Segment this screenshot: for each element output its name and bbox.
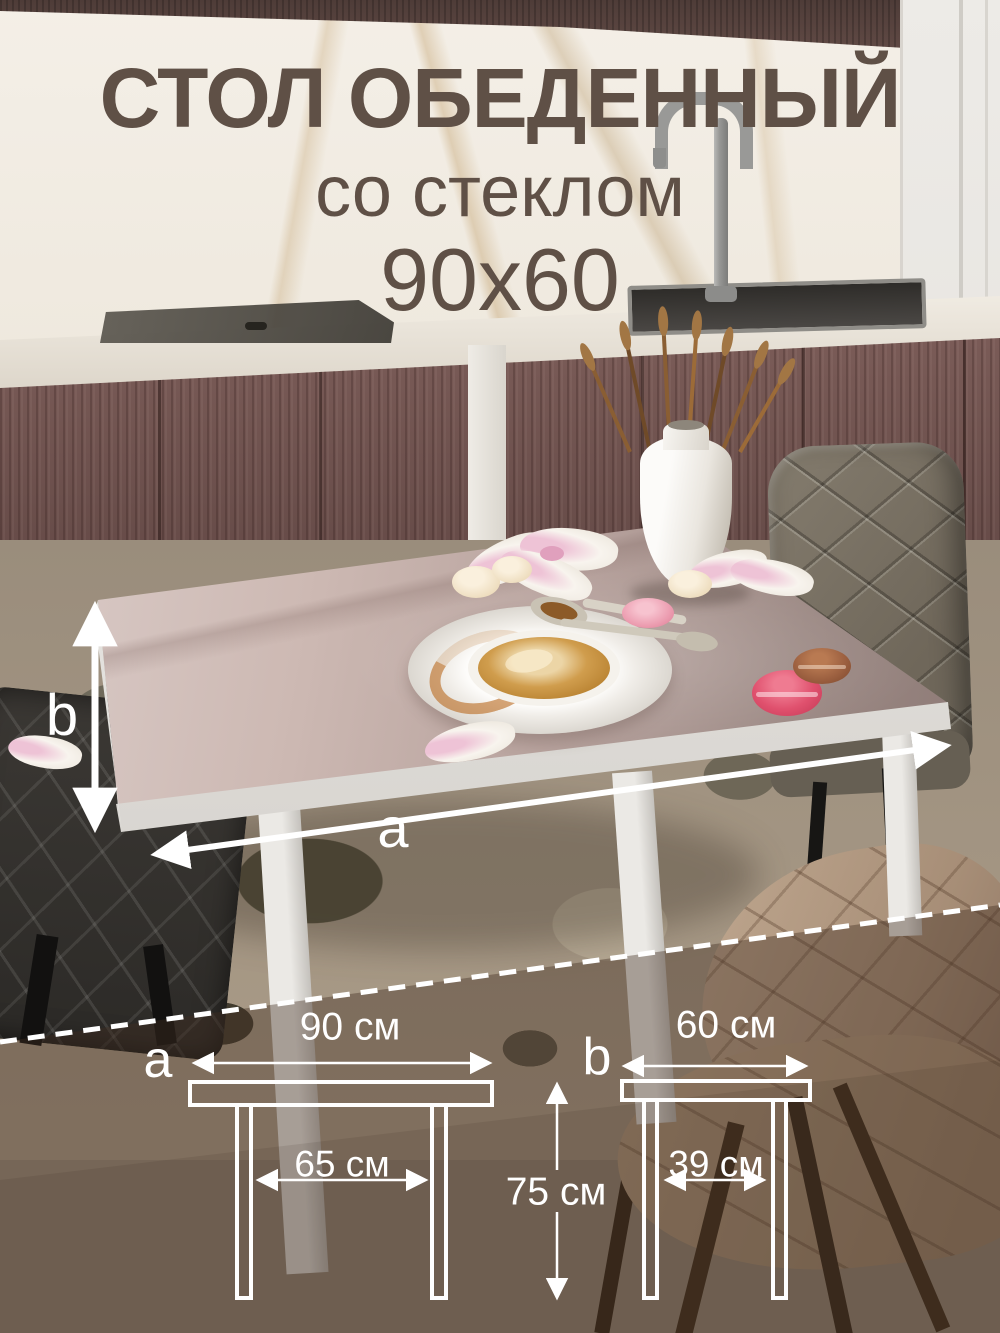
side-width-value: 60 см bbox=[676, 1006, 777, 1045]
side-view-label: b bbox=[583, 1031, 612, 1083]
height-value: 75 см bbox=[506, 1173, 607, 1212]
photo-depth-label: b bbox=[46, 687, 78, 745]
front-legspan-value: 65 см bbox=[294, 1146, 389, 1183]
side-legspan-value: 39 см bbox=[668, 1146, 763, 1183]
width-arrow-a bbox=[158, 746, 944, 854]
product-subtitle: со стеклом bbox=[0, 156, 1000, 228]
front-view-label: a bbox=[144, 1034, 173, 1086]
photo-width-label: a bbox=[377, 800, 408, 856]
product-size: 90х60 bbox=[0, 236, 1000, 324]
product-title: СТОЛ ОБЕДЕННЫЙ bbox=[0, 56, 1000, 142]
front-width-value: 90 см bbox=[300, 1008, 401, 1047]
title-block: СТОЛ ОБЕДЕННЫЙ со стеклом 90х60 bbox=[0, 56, 1000, 324]
product-card: b a a 90 см 65 см b 60 см 39 см 75 см СТ… bbox=[0, 0, 1000, 1333]
